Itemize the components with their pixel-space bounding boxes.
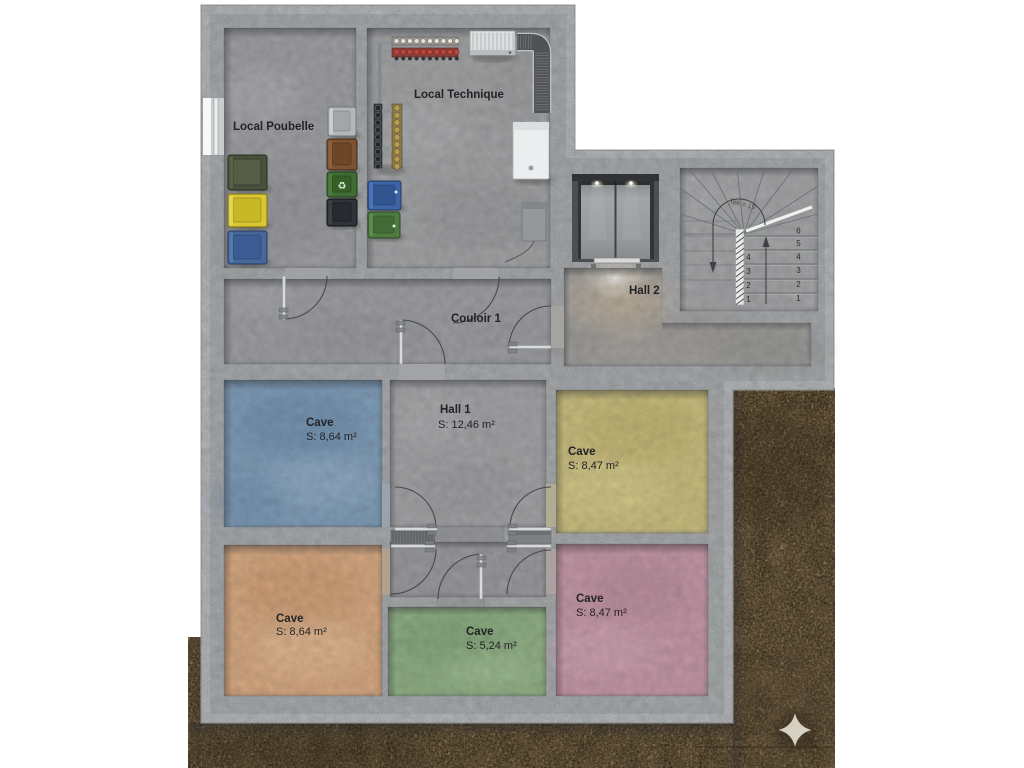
svg-text:1: 1 [746, 295, 751, 304]
svg-text:Cave: Cave [576, 593, 604, 605]
svg-text:3: 3 [796, 266, 801, 275]
svg-text:Local Technique: Local Technique [414, 89, 504, 101]
svg-text:S: 8,64 m²: S: 8,64 m² [306, 431, 357, 443]
svg-text:4: 4 [796, 253, 801, 262]
svg-text:5: 5 [796, 239, 801, 248]
svg-text:Hall 2: Hall 2 [629, 285, 660, 297]
svg-text:S: 8,64 m²: S: 8,64 m² [276, 626, 327, 638]
svg-text:3: 3 [746, 267, 751, 276]
svg-text:S: 5,24 m²: S: 5,24 m² [466, 640, 517, 652]
svg-text:4: 4 [746, 253, 751, 262]
svg-text:Cave: Cave [276, 613, 304, 625]
svg-text:S: 8,47 m²: S: 8,47 m² [568, 460, 619, 472]
svg-text:6: 6 [796, 227, 801, 236]
svg-text:Couloir 1: Couloir 1 [451, 313, 501, 325]
svg-text:1: 1 [796, 294, 801, 303]
svg-text:Cave: Cave [466, 626, 494, 638]
svg-text:Cave: Cave [306, 417, 334, 429]
svg-text:2: 2 [796, 280, 801, 289]
svg-text:S: 12,46 m²: S: 12,46 m² [438, 419, 495, 431]
svg-text:Local Poubelle: Local Poubelle [233, 121, 314, 133]
svg-text:2: 2 [746, 281, 751, 290]
svg-text:Hall 1: Hall 1 [440, 404, 471, 416]
svg-text:S: 8,47 m²: S: 8,47 m² [576, 607, 627, 619]
svg-text:♻: ♻ [338, 181, 347, 192]
svg-text:Cave: Cave [568, 446, 596, 458]
